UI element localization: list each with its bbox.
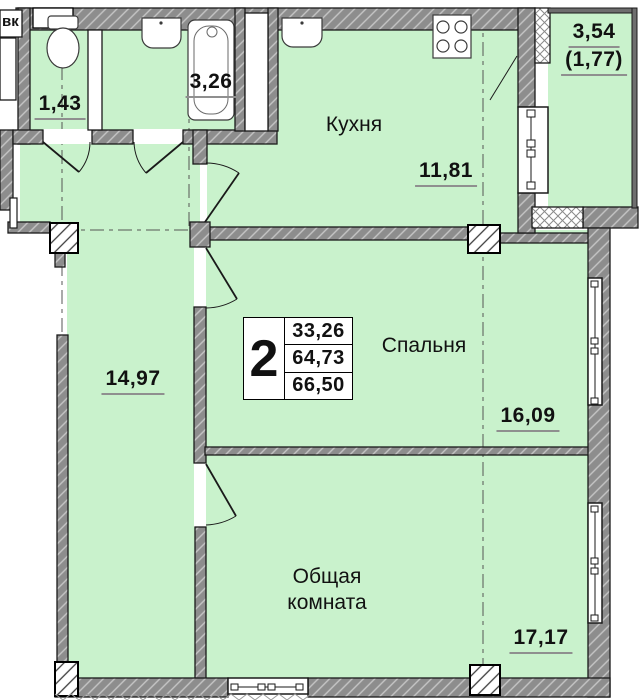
apartment-info-table: 2 33,26 64,73 66,50 (243, 317, 353, 400)
wall-segment (13, 130, 43, 144)
pillar-icon (470, 665, 500, 695)
floor-plan: вк 1,43 3,26 Кухня 11,81 3,54 (1,77) 14,… (0, 0, 639, 700)
living-area-value: 33,26 (285, 318, 352, 345)
wall-segment (190, 222, 210, 247)
bedroom-area-label: 16,09 (496, 404, 559, 432)
wall-segment (500, 233, 590, 243)
bathroom-area-label: 3,26 (186, 70, 237, 98)
wc-area-label: 1,43 (35, 92, 86, 120)
balcony-area-reduced-label: (1,77) (561, 48, 627, 76)
rooms-count: 2 (244, 318, 285, 399)
living-room-name-line1: Общая (287, 564, 366, 590)
living-room-area-label: 17,17 (509, 626, 572, 654)
bathroom-area-value: 3,26 (186, 70, 237, 98)
pillar-icon (50, 223, 78, 253)
bedroom-area-value: 16,09 (496, 404, 559, 432)
shaft-box (0, 38, 16, 100)
balcony-area-total-value: 3,54 (569, 20, 620, 48)
wall-segment (57, 335, 68, 680)
shaft-box (245, 13, 268, 131)
wc-area-value: 1,43 (35, 92, 86, 120)
stove-icon (433, 15, 471, 58)
wall-segment (193, 227, 468, 240)
entrance-door-leaf (10, 198, 17, 228)
kitchen-sink-icon (282, 18, 322, 47)
balcony-area-total-label: 3,54 (569, 20, 620, 48)
wall-segment (193, 130, 207, 164)
corner-label: вк (2, 13, 19, 30)
wall-segment (268, 8, 278, 131)
hall-area-value: 14,97 (101, 367, 164, 395)
living-room-name-line2: комната (287, 590, 366, 616)
wall-segment (205, 447, 590, 455)
hall-area-label: 14,97 (101, 367, 164, 395)
kitchen-name-label: Кухня (326, 113, 382, 137)
wall-segment (92, 130, 133, 144)
total-area-value: 66,50 (285, 373, 352, 399)
wall-segment (55, 678, 228, 697)
bedroom-name-label: Спальня (382, 334, 466, 358)
living-room-name-label: Общая комната (287, 564, 366, 617)
kitchen-area-value: 11,81 (415, 159, 477, 187)
balcony-area-reduced-value: (1,77) (561, 48, 627, 76)
wall-segment (518, 8, 535, 107)
pillar-icon (55, 662, 78, 696)
bathroom-sink-icon (142, 18, 181, 48)
wall-segment (308, 678, 610, 697)
window-icon (518, 107, 548, 193)
toilet-icon (47, 16, 79, 68)
wall-segment (195, 527, 206, 680)
wall-segment (583, 207, 638, 228)
window-icon (588, 503, 602, 623)
window-icon (228, 678, 308, 694)
living-room-area-value: 17,17 (509, 626, 572, 654)
kitchen-area-label: 11,81 (415, 159, 477, 187)
shaft-box (88, 30, 102, 130)
pillar-icon (468, 225, 500, 253)
window-icon (588, 278, 602, 405)
wall-segment (235, 8, 245, 131)
wall-segment (194, 307, 206, 463)
area-row2-value: 64,73 (285, 345, 352, 372)
